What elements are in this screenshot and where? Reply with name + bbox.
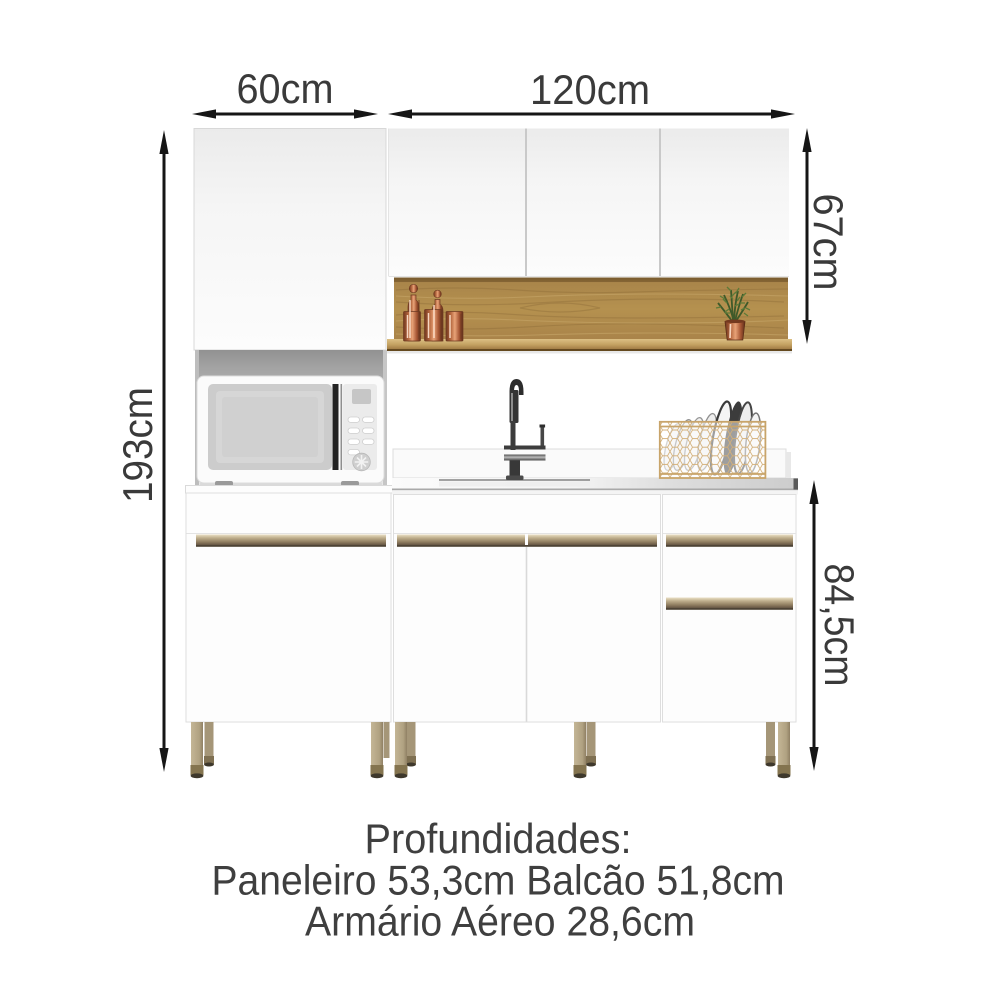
svg-text:193cm: 193cm (114, 387, 161, 503)
svg-text:84,5cm: 84,5cm (816, 564, 863, 687)
svg-text:Armário Aéreo 28,6cm: Armário Aéreo 28,6cm (305, 898, 695, 945)
svg-text:120cm: 120cm (530, 66, 650, 113)
svg-text:60cm: 60cm (237, 65, 334, 112)
svg-text:67cm: 67cm (805, 194, 852, 291)
svg-text:Paneleiro 53,3cm Balcão 51,8cm: Paneleiro 53,3cm Balcão 51,8cm (212, 857, 785, 904)
svg-text:Profundidades:: Profundidades: (365, 815, 632, 862)
